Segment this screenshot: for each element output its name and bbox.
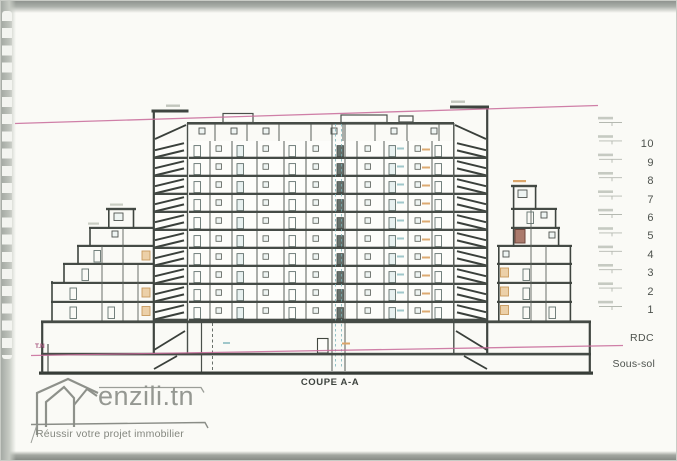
floor-label: 7 (601, 190, 654, 208)
floor-label: 3 (601, 264, 654, 282)
floor-label: 10 (601, 135, 654, 153)
terrain-label: T.N (35, 343, 45, 350)
brand-tagline: Réussir votre projet immobilier (36, 428, 184, 440)
watermark: enzili.tn Réussir votre projet immobilie… (29, 375, 211, 449)
rdc-label: RDC (601, 332, 654, 344)
brand-text: enzili.tn (98, 381, 194, 412)
floor-label: 5 (601, 227, 654, 245)
basement-label: Sous-sol (599, 358, 655, 370)
rooftop-label-marks (166, 101, 465, 107)
binding-strip (1, 1, 16, 461)
scan-edge-top (1, 1, 677, 13)
floor-label: 1 (601, 301, 654, 319)
stair-shaft-left (153, 125, 187, 369)
floor-labels: 10 9 8 7 6 5 4 3 2 1 (601, 135, 654, 319)
floor-label: 2 (601, 283, 654, 301)
section-title: COUPE A-A (278, 377, 382, 388)
binding-holes (2, 11, 12, 359)
floor-label: 4 (601, 246, 654, 264)
left-wing (51, 204, 153, 323)
scan-edge-bottom (1, 451, 677, 460)
stair-shaft-right (454, 125, 488, 369)
right-wing (497, 180, 572, 322)
floor-label: 8 (601, 172, 654, 190)
floor-label: 9 (601, 153, 654, 171)
site-level-line-top (15, 106, 598, 124)
floor-label: 6 (601, 209, 654, 227)
scanned-plan-page: 10 9 8 7 6 5 4 3 2 1 RDC Sous-sol COUPE … (0, 0, 677, 461)
central-tower (152, 106, 490, 373)
